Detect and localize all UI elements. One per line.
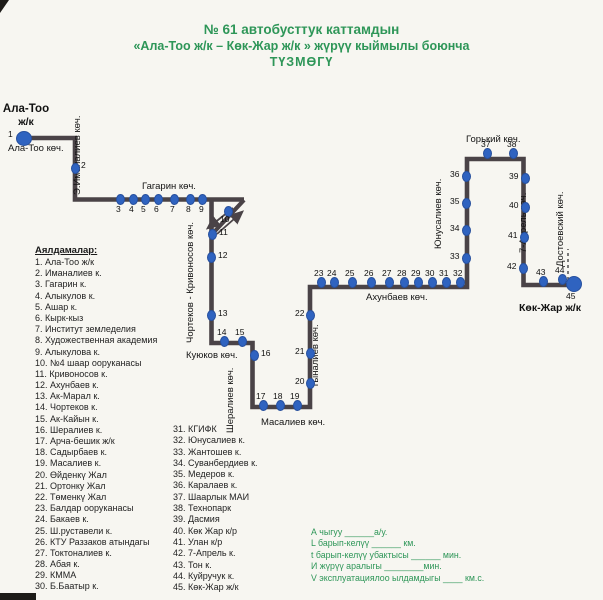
- stop-number-3: 3: [116, 205, 121, 214]
- stop-number-10: 10: [220, 215, 229, 224]
- stop-dot-31: [442, 277, 451, 288]
- stop-number-2: 2: [81, 161, 86, 170]
- stop-dot-8: [186, 194, 195, 205]
- list-item: 14. Чортеков к.: [35, 402, 157, 413]
- stop-number-32: 32: [453, 269, 462, 278]
- legend-line: И жүрүү аралыгы ________мин.: [311, 561, 484, 572]
- start-terminal-circle: [16, 131, 32, 146]
- stop-number-14: 14: [217, 328, 226, 337]
- stop-number-30: 30: [425, 269, 434, 278]
- stop-number-18: 18: [273, 392, 282, 401]
- list-item: 38. Технопарк: [173, 503, 258, 514]
- list-item: 34. Суванбердиев к.: [173, 458, 258, 469]
- stop-dot-27: [385, 277, 394, 288]
- stop-number-16: 16: [261, 349, 270, 358]
- stop-dot-43: [539, 276, 548, 287]
- stop-number-35: 35: [450, 197, 459, 206]
- stop-number-1: 1: [8, 130, 13, 139]
- street-label: Ахунбаев көч.: [366, 292, 428, 303]
- stop-number-45: 45: [566, 292, 575, 301]
- list-item: 35. Медеров к.: [173, 469, 258, 480]
- legend-line: L барып-келүү ______ км.: [311, 538, 484, 549]
- stop-number-23: 23: [314, 269, 323, 278]
- stop-dot-37: [483, 148, 492, 159]
- stop-dot-40: [521, 202, 530, 213]
- stop-dot-20: [306, 378, 315, 389]
- street-label: Достоевский көч.: [555, 191, 566, 267]
- scan-artifact-bottom-left: [0, 593, 36, 600]
- stop-list-column-1: 1. Ала-Тоо ж/к2. Иманалиев к.3. Гагарин …: [35, 257, 157, 593]
- list-item: 42. 7-Апрель к.: [173, 548, 258, 559]
- legend-line: А чыгуу ______а/у.: [311, 527, 484, 538]
- stop-dot-14: [220, 336, 229, 347]
- list-item: 10. №4 шаар ооруканасы: [35, 358, 157, 369]
- list-item: 33. Жантошев к.: [173, 447, 258, 458]
- list-item: 44. Куйручук к.: [173, 571, 258, 582]
- stop-number-7: 7: [170, 205, 175, 214]
- stop-dot-21: [306, 348, 315, 359]
- street-label: Чортеков - Кривоносов көч.: [185, 222, 196, 343]
- list-item: 1. Ала-Тоо ж/к: [35, 257, 157, 268]
- stop-list-header: Аялдамалар:: [35, 245, 97, 256]
- list-item: 21. Ортонку Жал: [35, 481, 157, 492]
- stop-number-41: 41: [508, 231, 517, 240]
- stop-dot-2: [71, 163, 80, 174]
- terminal-start-type: ж/к: [0, 116, 52, 128]
- stop-dot-18: [276, 400, 285, 411]
- stop-number-34: 34: [450, 224, 459, 233]
- list-item: 6. Кырк-кыз: [35, 313, 157, 324]
- stop-number-11: 11: [219, 228, 228, 237]
- end-terminal-circle: [566, 276, 582, 292]
- route-metrics-legend: А чыгуу ______а/у.L барып-келүү ______ к…: [311, 527, 484, 584]
- stop-number-26: 26: [364, 269, 373, 278]
- list-item: 39. Дасмия: [173, 514, 258, 525]
- street-label: Масалиев көч.: [261, 417, 325, 428]
- stop-number-20: 20: [295, 377, 304, 386]
- list-item: 11. Кривоносов к.: [35, 369, 157, 380]
- stop-dot-17: [259, 400, 268, 411]
- list-item: 2. Иманалиев к.: [35, 268, 157, 279]
- list-item: 13. Ак-Марал к.: [35, 391, 157, 402]
- stop-dot-4: [129, 194, 138, 205]
- list-item: 15. Ак-Кайын к.: [35, 414, 157, 425]
- legend-line: t барып-келүү убактысы ______ мин.: [311, 550, 484, 561]
- list-item: 43. Тон к.: [173, 560, 258, 571]
- stop-dot-28: [400, 277, 409, 288]
- stop-dot-30: [428, 277, 437, 288]
- street-label: Юнусалиев көч.: [433, 179, 444, 249]
- stop-number-6: 6: [154, 205, 159, 214]
- stop-dot-36: [462, 171, 471, 182]
- list-item: 26. КТУ Раззаков атындагы: [35, 537, 157, 548]
- stop-dot-41: [520, 232, 529, 243]
- stop-number-21: 21: [295, 347, 304, 356]
- stop-number-9: 9: [199, 205, 204, 214]
- stop-dot-12: [207, 252, 216, 263]
- stop-dot-25: [348, 277, 357, 288]
- stop-number-33: 33: [450, 252, 459, 261]
- list-item: 4. Алыкулов к.: [35, 291, 157, 302]
- list-item: 40. Көк Жар к/р: [173, 526, 258, 537]
- stop-number-25: 25: [345, 269, 354, 278]
- stop-dot-16: [250, 350, 259, 361]
- stop-number-31: 31: [439, 269, 448, 278]
- stop-number-42: 42: [507, 262, 516, 271]
- list-item: 31. КГИФК: [173, 424, 258, 435]
- list-item: 23. Балдар ооруканасы: [35, 503, 157, 514]
- stop-number-36: 36: [450, 170, 459, 179]
- stop-number-40: 40: [509, 201, 518, 210]
- stop-dot-26: [367, 277, 376, 288]
- list-item: 9. Алыкулова к.: [35, 347, 157, 358]
- stop-number-24: 24: [327, 269, 336, 278]
- stop-dot-19: [293, 400, 302, 411]
- stop-number-4: 4: [129, 205, 134, 214]
- stop-dot-33: [462, 253, 471, 264]
- stop-number-28: 28: [397, 269, 406, 278]
- stop-dot-13: [207, 310, 216, 321]
- street-label: Э.Иманалиев көч.: [72, 116, 83, 196]
- list-item: 41. Улан к/р: [173, 537, 258, 548]
- list-item: 16. Шералиев к.: [35, 425, 157, 436]
- stop-dot-3: [116, 194, 125, 205]
- stop-number-27: 27: [382, 269, 391, 278]
- list-item: 29. КММА: [35, 570, 157, 581]
- stop-number-29: 29: [411, 269, 420, 278]
- stop-dot-9: [198, 194, 207, 205]
- stop-number-22: 22: [295, 309, 304, 318]
- list-item: 25. Ш.руставели к.: [35, 526, 157, 537]
- stop-dot-5: [141, 194, 150, 205]
- list-item: 45. Көк-Жар ж/к: [173, 582, 258, 593]
- stop-dot-29: [414, 277, 423, 288]
- stop-number-5: 5: [141, 205, 146, 214]
- terminal-start-name: Ала-Тоо: [0, 103, 52, 116]
- stop-number-44: 44: [555, 266, 564, 275]
- list-item: 27. Токтоналиев к.: [35, 548, 157, 559]
- list-item: 19. Масалиев к.: [35, 458, 157, 469]
- scan-artifact-top-left: [0, 0, 9, 13]
- stop-dot-34: [462, 225, 471, 236]
- legend-line: V эксплуатациялоо ылдамдыгы ____ км.с.: [311, 573, 484, 584]
- stop-number-12: 12: [218, 251, 227, 260]
- list-item: 22. Төменкү Жал: [35, 492, 157, 503]
- list-item: 5. Ашар к.: [35, 302, 157, 313]
- stop-list-column-2: 31. КГИФК32. Юнусалиев к.33. Жантошев к.…: [173, 424, 258, 593]
- stop-dot-38: [509, 148, 518, 159]
- stop-number-15: 15: [235, 328, 244, 337]
- stop-dot-32: [456, 277, 465, 288]
- stop-number-38: 38: [507, 140, 516, 149]
- stop-dot-35: [462, 198, 471, 209]
- list-item: 36. Каралаев к.: [173, 480, 258, 491]
- list-item: 7. Институт земледелия: [35, 324, 157, 335]
- terminal-start-label: Ала-Тоо ж/к: [0, 103, 52, 128]
- list-item: 8. Художественная академия: [35, 335, 157, 346]
- stop-dot-15: [238, 336, 247, 347]
- street-label: Гагарин көч.: [142, 181, 196, 192]
- stop-number-39: 39: [509, 172, 518, 181]
- list-item: 18. Садырбаев к.: [35, 447, 157, 458]
- list-item: 3. Гагарин к.: [35, 279, 157, 290]
- list-item: 17. Арча-бешик ж/к: [35, 436, 157, 447]
- list-item: 37. Шаарлык МАИ: [173, 492, 258, 503]
- stop-number-43: 43: [536, 268, 545, 277]
- stop-dot-6: [154, 194, 163, 205]
- stop-number-8: 8: [186, 205, 191, 214]
- list-item: 32. Юнусалиев к.: [173, 435, 258, 446]
- stop-dot-39: [521, 173, 530, 184]
- stop-number-13: 13: [218, 309, 227, 318]
- stop-number-37: 37: [481, 140, 490, 149]
- stop-number-17: 17: [256, 392, 265, 401]
- stop-dot-22: [306, 310, 315, 321]
- street-label: Куюков көч.: [186, 350, 238, 361]
- list-item: 24. Бакаев к.: [35, 514, 157, 525]
- list-item: 30. Б.Баатыр к.: [35, 581, 157, 592]
- list-item: 20. Өйденкү Жал: [35, 470, 157, 481]
- stop-dot-42: [519, 263, 528, 274]
- stop-dot-11: [208, 229, 217, 240]
- scanned-route-diagram: № 61 автобусттук каттамдын «Ала-Тоо ж/к …: [0, 0, 603, 600]
- stop-dot-24: [330, 277, 339, 288]
- list-item: 28. Абая к.: [35, 559, 157, 570]
- terminal-end-label: Көк-Жар ж/к: [510, 302, 590, 314]
- stop-dot-23: [317, 277, 326, 288]
- stop-dot-7: [170, 194, 179, 205]
- street-label: Ала-Тоо көч.: [8, 143, 64, 154]
- list-item: 12. Ахунбаев к.: [35, 380, 157, 391]
- stop-number-19: 19: [290, 392, 299, 401]
